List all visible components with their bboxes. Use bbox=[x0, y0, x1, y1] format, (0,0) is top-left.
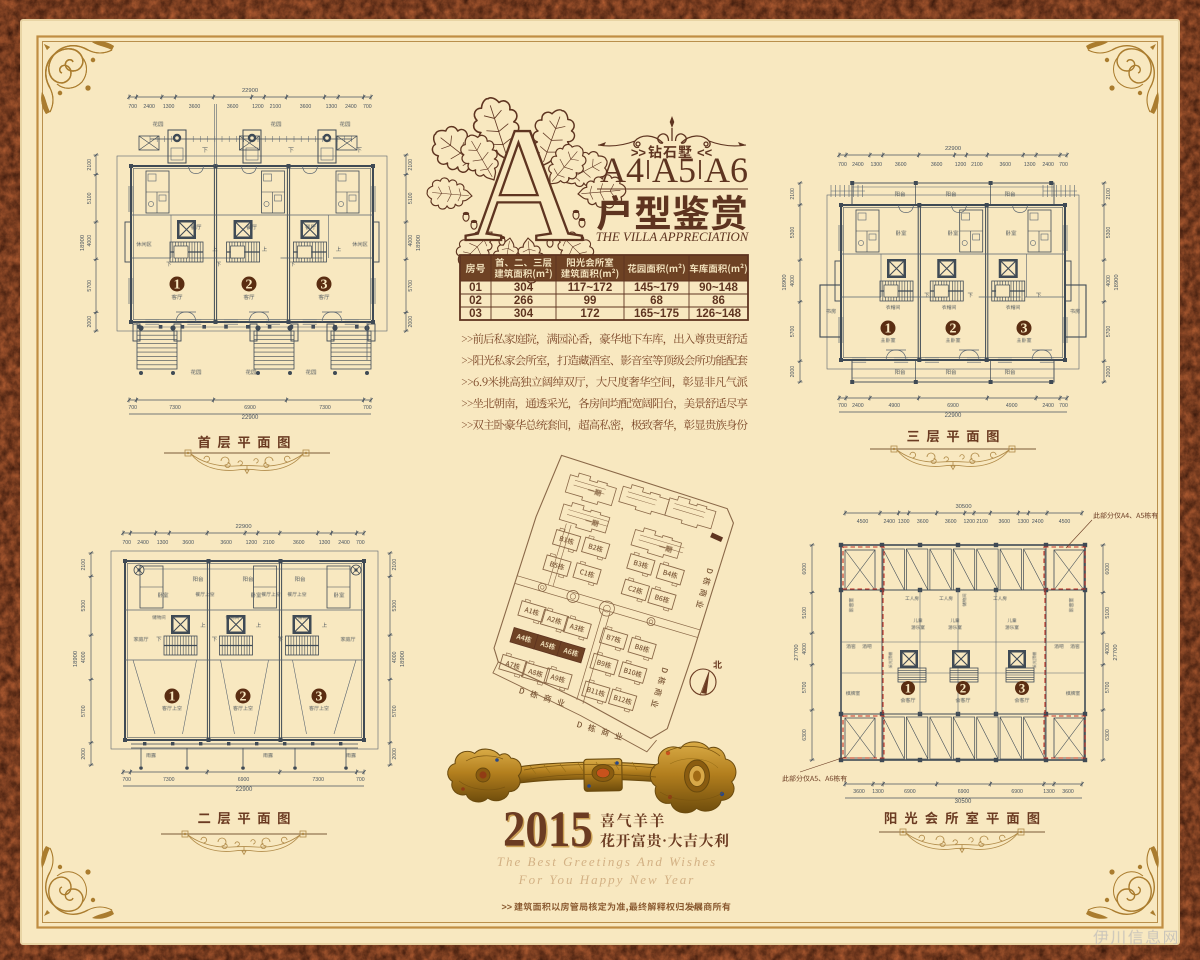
svg-text:27700: 27700 bbox=[1113, 644, 1119, 660]
svg-text:700: 700 bbox=[1059, 403, 1068, 409]
svg-text:6900: 6900 bbox=[904, 789, 916, 795]
svg-text:2100: 2100 bbox=[790, 188, 796, 200]
svg-text:3600: 3600 bbox=[945, 519, 957, 525]
svg-text:<<: << bbox=[692, 902, 703, 912]
svg-text:3600: 3600 bbox=[853, 789, 865, 795]
svg-text:90~148: 90~148 bbox=[699, 282, 738, 294]
svg-text:2400: 2400 bbox=[1042, 162, 1054, 168]
svg-text:01: 01 bbox=[469, 282, 482, 294]
svg-text:4500: 4500 bbox=[857, 519, 869, 525]
svg-text:02: 02 bbox=[469, 295, 482, 307]
svg-text:3600: 3600 bbox=[895, 162, 907, 168]
svg-text:4000: 4000 bbox=[802, 643, 808, 655]
svg-text:5100: 5100 bbox=[408, 192, 414, 204]
svg-text:4000: 4000 bbox=[1106, 275, 1112, 287]
svg-text:2: 2 bbox=[950, 322, 957, 337]
svg-text:700: 700 bbox=[363, 405, 372, 411]
svg-text:6900: 6900 bbox=[238, 777, 250, 783]
svg-text:99: 99 bbox=[584, 295, 597, 307]
svg-text:5100: 5100 bbox=[87, 192, 93, 204]
svg-text:2000: 2000 bbox=[1106, 366, 1112, 378]
svg-text:700: 700 bbox=[122, 777, 131, 783]
svg-text:22900: 22900 bbox=[945, 146, 961, 152]
svg-text:22900: 22900 bbox=[945, 413, 962, 419]
svg-text:2400: 2400 bbox=[852, 162, 864, 168]
svg-text:700: 700 bbox=[1059, 162, 1068, 168]
svg-text:1300: 1300 bbox=[1043, 789, 1055, 795]
svg-text:2100: 2100 bbox=[263, 540, 275, 546]
svg-text:700: 700 bbox=[363, 104, 372, 110]
svg-text:1: 1 bbox=[905, 680, 912, 695]
svg-text:266: 266 bbox=[514, 295, 533, 307]
svg-text:5700: 5700 bbox=[81, 705, 87, 717]
svg-text:7300: 7300 bbox=[319, 405, 331, 411]
svg-text:3600: 3600 bbox=[220, 540, 232, 546]
svg-text:6900: 6900 bbox=[1011, 789, 1023, 795]
svg-text:3600: 3600 bbox=[300, 104, 312, 110]
svg-text:4900: 4900 bbox=[1006, 403, 1018, 409]
svg-text:A5: A5 bbox=[652, 150, 696, 190]
svg-text:30500: 30500 bbox=[955, 799, 972, 805]
svg-text:A4: A4 bbox=[600, 150, 644, 190]
svg-text:700: 700 bbox=[122, 540, 131, 546]
svg-text:3600: 3600 bbox=[227, 104, 239, 110]
svg-text:1300: 1300 bbox=[319, 540, 331, 546]
svg-text:3600: 3600 bbox=[182, 540, 194, 546]
svg-text:1300: 1300 bbox=[326, 104, 338, 110]
svg-text:2400: 2400 bbox=[1032, 519, 1044, 525]
svg-text:The Best Greetings And Wishes: The Best Greetings And Wishes bbox=[497, 854, 718, 869]
svg-text:3600: 3600 bbox=[917, 519, 929, 525]
svg-text:1200: 1200 bbox=[964, 519, 976, 525]
svg-text:86: 86 bbox=[712, 295, 725, 307]
svg-text:4500: 4500 bbox=[1059, 519, 1071, 525]
svg-text:4000: 4000 bbox=[392, 651, 398, 663]
svg-text:5700: 5700 bbox=[87, 280, 93, 292]
svg-text:3600: 3600 bbox=[931, 162, 943, 168]
svg-text:2100: 2100 bbox=[408, 159, 414, 171]
svg-text:6000: 6000 bbox=[802, 563, 808, 575]
svg-text:5300: 5300 bbox=[392, 600, 398, 612]
svg-text:18900: 18900 bbox=[80, 235, 86, 251]
svg-text:18900: 18900 bbox=[400, 651, 406, 667]
svg-text:18900: 18900 bbox=[416, 235, 422, 251]
svg-text:3600: 3600 bbox=[293, 540, 305, 546]
svg-text:5700: 5700 bbox=[790, 326, 796, 338]
svg-text:18900: 18900 bbox=[73, 651, 79, 667]
svg-text:2100: 2100 bbox=[270, 104, 282, 110]
svg-text:A6: A6 bbox=[704, 150, 748, 190]
svg-text:145~179: 145~179 bbox=[634, 282, 679, 294]
svg-text:5300: 5300 bbox=[790, 227, 796, 239]
svg-text:5100: 5100 bbox=[1105, 607, 1111, 619]
svg-text:2: 2 bbox=[240, 690, 247, 705]
svg-text:700: 700 bbox=[838, 403, 847, 409]
svg-text:3: 3 bbox=[316, 690, 323, 705]
svg-text:18900: 18900 bbox=[1114, 274, 1120, 290]
svg-text:2400: 2400 bbox=[884, 519, 896, 525]
svg-text:2000: 2000 bbox=[392, 748, 398, 760]
svg-text:5300: 5300 bbox=[81, 600, 87, 612]
svg-text:2015: 2015 bbox=[503, 801, 593, 857]
svg-text:7300: 7300 bbox=[312, 777, 324, 783]
svg-text:2100: 2100 bbox=[392, 559, 398, 571]
svg-text:2100: 2100 bbox=[81, 559, 87, 571]
svg-text:27700: 27700 bbox=[794, 644, 800, 660]
svg-text:700: 700 bbox=[128, 104, 137, 110]
svg-text:18900: 18900 bbox=[782, 274, 788, 290]
svg-text:1300: 1300 bbox=[871, 162, 883, 168]
svg-text:1300: 1300 bbox=[898, 519, 910, 525]
svg-text:6300: 6300 bbox=[802, 729, 808, 741]
svg-text:2000: 2000 bbox=[408, 316, 414, 328]
svg-text:2400: 2400 bbox=[137, 540, 149, 546]
svg-text:1300: 1300 bbox=[1018, 519, 1030, 525]
svg-text:3600: 3600 bbox=[189, 104, 201, 110]
svg-text:03: 03 bbox=[469, 308, 482, 320]
svg-text:68: 68 bbox=[650, 295, 663, 307]
svg-text:3600: 3600 bbox=[1000, 162, 1012, 168]
svg-text:6900: 6900 bbox=[244, 405, 256, 411]
svg-text:THE VILLA APPRECIATION: THE VILLA APPRECIATION bbox=[596, 230, 750, 244]
svg-text:700: 700 bbox=[356, 540, 365, 546]
svg-text:304: 304 bbox=[514, 308, 534, 320]
svg-text:1200: 1200 bbox=[252, 104, 264, 110]
svg-text:165~175: 165~175 bbox=[634, 308, 680, 320]
svg-text:1200: 1200 bbox=[246, 540, 258, 546]
svg-text:2100: 2100 bbox=[971, 162, 983, 168]
svg-text:700: 700 bbox=[356, 777, 365, 783]
svg-text:700: 700 bbox=[838, 162, 847, 168]
svg-text:2100: 2100 bbox=[87, 159, 93, 171]
svg-text:6900: 6900 bbox=[947, 403, 959, 409]
svg-text:22900: 22900 bbox=[242, 88, 258, 94]
svg-text:4900: 4900 bbox=[889, 403, 901, 409]
svg-text:172: 172 bbox=[580, 308, 599, 320]
svg-text:2400: 2400 bbox=[345, 104, 357, 110]
svg-text:5700: 5700 bbox=[802, 682, 808, 694]
svg-text:22900: 22900 bbox=[242, 415, 259, 421]
svg-text:1300: 1300 bbox=[1024, 162, 1036, 168]
svg-text:1: 1 bbox=[169, 690, 176, 705]
svg-text:1200: 1200 bbox=[955, 162, 967, 168]
svg-text:3600: 3600 bbox=[1062, 789, 1074, 795]
svg-text:6300: 6300 bbox=[1105, 729, 1111, 741]
svg-text:2100: 2100 bbox=[976, 519, 988, 525]
svg-text:4000: 4000 bbox=[790, 275, 796, 287]
svg-text:1300: 1300 bbox=[163, 104, 175, 110]
svg-text:2400: 2400 bbox=[852, 403, 864, 409]
svg-text:126~148: 126~148 bbox=[696, 308, 742, 320]
svg-text:2000: 2000 bbox=[790, 366, 796, 378]
svg-text:7300: 7300 bbox=[169, 405, 181, 411]
svg-text:1300: 1300 bbox=[157, 540, 169, 546]
svg-text:22900: 22900 bbox=[236, 787, 253, 793]
svg-text:2400: 2400 bbox=[338, 540, 350, 546]
svg-text:7300: 7300 bbox=[163, 777, 175, 783]
svg-text:4000: 4000 bbox=[87, 235, 93, 247]
svg-text:1: 1 bbox=[885, 322, 892, 337]
svg-text:6000: 6000 bbox=[1105, 563, 1111, 575]
svg-text:5100: 5100 bbox=[802, 607, 808, 619]
svg-text:6900: 6900 bbox=[958, 789, 970, 795]
svg-text:For You Happy New Year: For You Happy New Year bbox=[518, 872, 696, 887]
svg-text:3: 3 bbox=[321, 278, 328, 293]
svg-text:5700: 5700 bbox=[1106, 326, 1112, 338]
svg-text:3600: 3600 bbox=[999, 519, 1011, 525]
svg-text:22900: 22900 bbox=[235, 524, 251, 530]
svg-text:4000: 4000 bbox=[408, 235, 414, 247]
svg-text:2: 2 bbox=[960, 680, 967, 695]
svg-text:>>: >> bbox=[501, 902, 512, 912]
svg-text:5700: 5700 bbox=[1105, 682, 1111, 694]
svg-text:4000: 4000 bbox=[1105, 643, 1111, 655]
svg-text:2400: 2400 bbox=[143, 104, 155, 110]
svg-text:2: 2 bbox=[246, 278, 253, 293]
svg-text:4000: 4000 bbox=[81, 651, 87, 663]
svg-text:2100: 2100 bbox=[1106, 188, 1112, 200]
svg-text:1: 1 bbox=[174, 278, 181, 293]
svg-text:700: 700 bbox=[128, 405, 137, 411]
svg-text:5700: 5700 bbox=[408, 280, 414, 292]
svg-text:3: 3 bbox=[1021, 322, 1028, 337]
svg-text:1300: 1300 bbox=[872, 789, 884, 795]
svg-text:2000: 2000 bbox=[87, 316, 93, 328]
svg-text:3: 3 bbox=[1019, 680, 1026, 695]
svg-text:117~172: 117~172 bbox=[568, 282, 612, 294]
svg-text:5300: 5300 bbox=[1106, 227, 1112, 239]
svg-text:304: 304 bbox=[514, 282, 534, 294]
svg-text:30500: 30500 bbox=[955, 504, 971, 510]
svg-text:2000: 2000 bbox=[81, 748, 87, 760]
svg-text:5700: 5700 bbox=[392, 705, 398, 717]
svg-text:2400: 2400 bbox=[1042, 403, 1054, 409]
